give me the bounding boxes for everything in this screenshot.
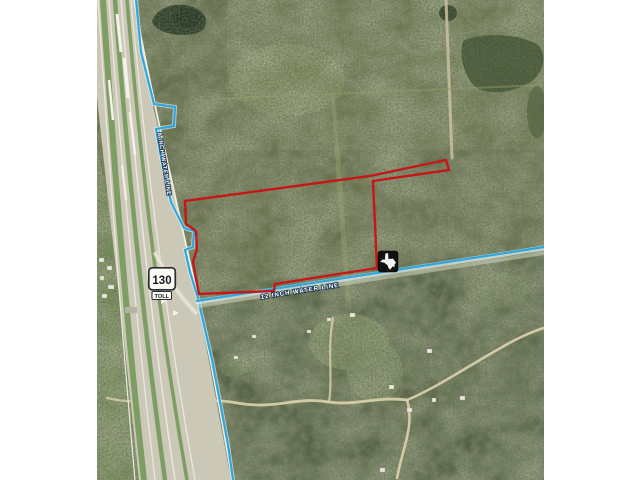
route-number: 130 <box>152 275 171 287</box>
route-shield-130-icon: 130 TOLL <box>149 268 176 300</box>
left-margin <box>0 0 97 480</box>
map-canvas[interactable]: 8 INCH WATER LINE 12 INCH WATER LINE 130… <box>97 0 544 480</box>
texas-logo-icon <box>378 251 398 272</box>
page: 8 INCH WATER LINE 12 INCH WATER LINE 130… <box>0 0 640 480</box>
right-margin <box>544 0 640 480</box>
roadside-structure <box>125 307 137 313</box>
aerial-imagery: 8 INCH WATER LINE 12 INCH WATER LINE 130… <box>97 0 544 480</box>
toll-banner: TOLL <box>155 294 170 300</box>
